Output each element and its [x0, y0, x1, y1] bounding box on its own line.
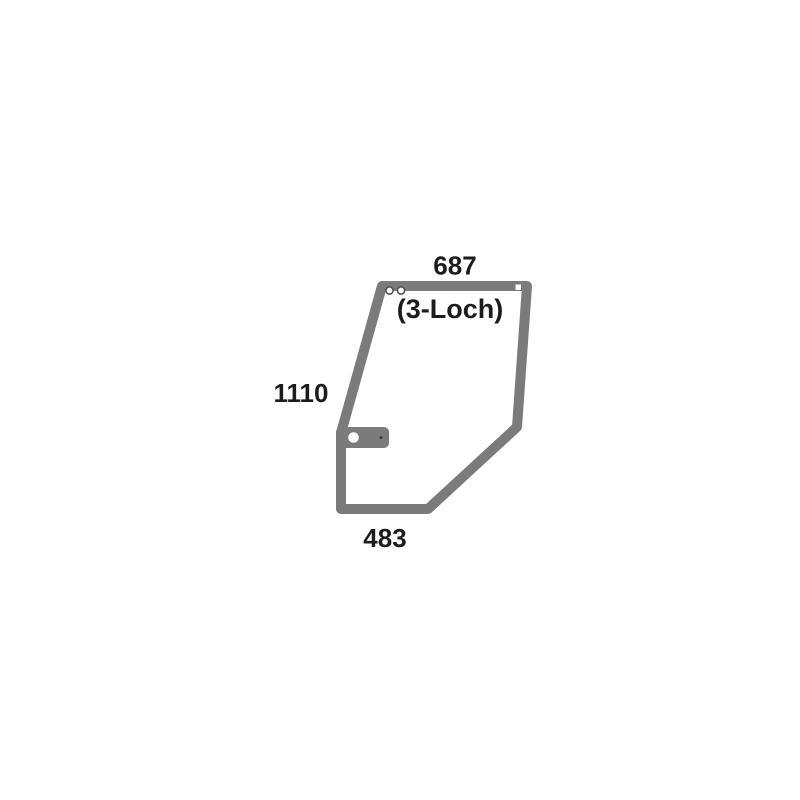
dimension-top-label: 687 — [433, 251, 476, 281]
hole-count-note: (3-Loch) — [397, 294, 503, 324]
rivet-dot-icon — [380, 436, 383, 439]
handle-hole-icon — [348, 432, 359, 443]
dimension-bottom-label: 483 — [363, 523, 406, 553]
door-glass-diagram: 687 (3-Loch) 1110 483 — [0, 0, 800, 800]
corner-square-hole-icon — [516, 285, 522, 291]
dimension-left-label: 1110 — [274, 378, 329, 408]
diagram-canvas: 687 (3-Loch) 1110 483 — [0, 0, 800, 800]
mounting-hole-1-icon — [386, 287, 393, 294]
